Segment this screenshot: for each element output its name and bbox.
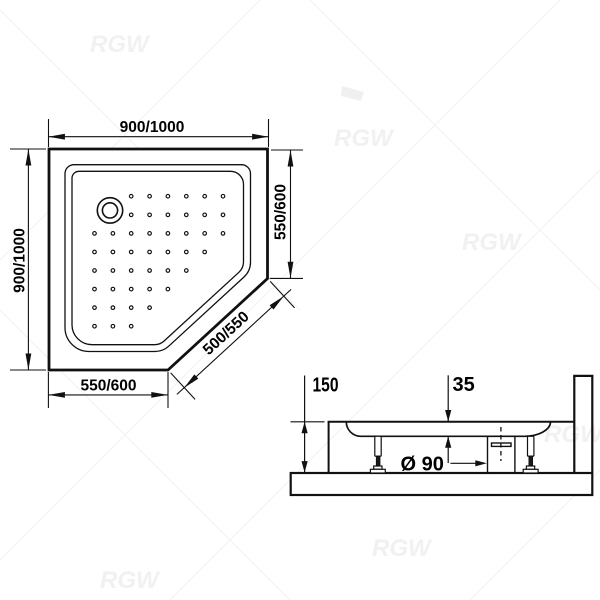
svg-text:RGW: RGW: [90, 31, 151, 58]
svg-text:RGW: RGW: [462, 229, 523, 256]
svg-text:RGW: RGW: [100, 567, 161, 594]
svg-text:RGW: RGW: [372, 535, 433, 562]
svg-text:150: 150: [313, 375, 339, 397]
svg-text:550/600: 550/600: [273, 184, 290, 240]
svg-text:RGW: RGW: [334, 125, 395, 152]
svg-text:35: 35: [453, 374, 475, 396]
svg-text:550/600: 550/600: [80, 377, 136, 394]
svg-text:900/1000: 900/1000: [11, 228, 28, 293]
svg-text:900/1000: 900/1000: [120, 119, 185, 136]
svg-text:Ø 90: Ø 90: [401, 453, 444, 475]
